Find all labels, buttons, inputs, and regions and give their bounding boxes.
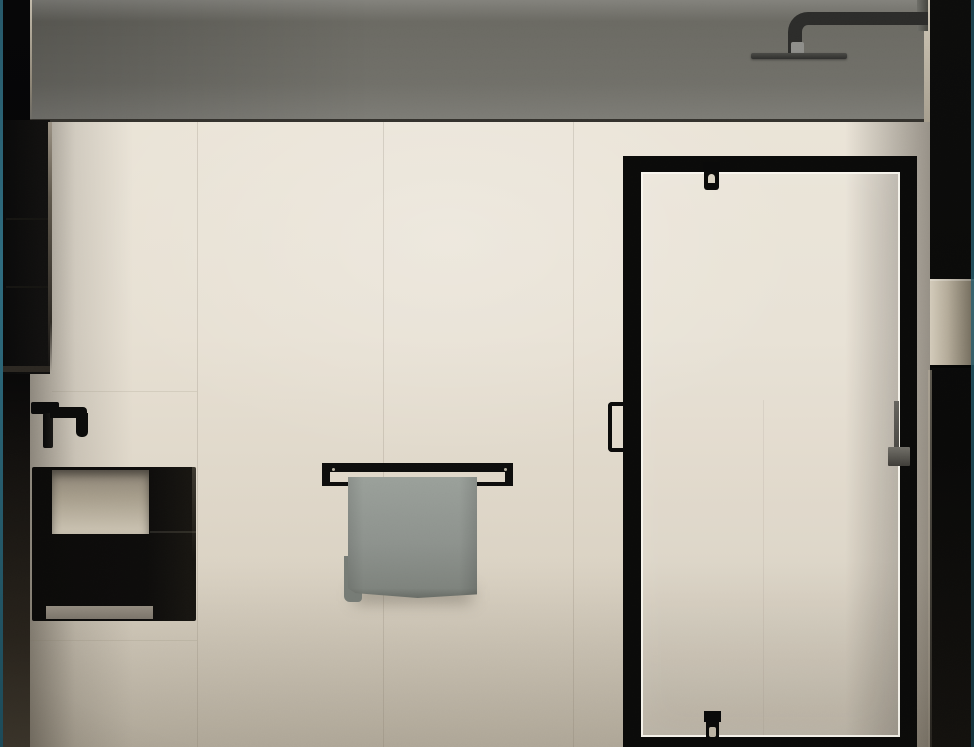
vanity-seam <box>150 531 196 533</box>
shower-glass <box>641 172 900 737</box>
tile-seam-vertical <box>573 122 574 747</box>
shower-enclosure-frame <box>623 156 917 747</box>
frame-edge-left <box>0 0 3 747</box>
faucet-handle <box>43 413 53 448</box>
rail-screw <box>504 468 507 471</box>
tile-seam-horizontal <box>30 640 197 641</box>
rain-shower-head <box>751 53 847 59</box>
left-cabinet <box>2 120 50 374</box>
towel-shading <box>348 477 477 598</box>
clamp-window <box>709 727 716 737</box>
clamp-tab <box>703 162 720 172</box>
cabinet-shelf-line <box>6 218 48 220</box>
cabinet-edge-highlight <box>48 122 52 372</box>
faucet-spout-tip <box>76 413 88 437</box>
glass-clamp-top <box>703 162 720 190</box>
towel <box>348 477 477 598</box>
hand-shower-rail <box>894 401 899 451</box>
cabinet-shelf-line <box>6 286 48 288</box>
vanity-edge-highlight <box>192 467 196 621</box>
vanity-niche <box>52 470 149 534</box>
vanity-basin <box>32 467 196 621</box>
clamp-window <box>708 174 715 183</box>
glass-clamp-bottom <box>704 711 721 740</box>
right-column-edge-highlight <box>928 370 932 747</box>
bathroom-render <box>0 0 974 747</box>
hand-shower-holder <box>888 447 910 466</box>
tile-seam-horizontal <box>52 391 197 392</box>
clamp-tab <box>704 711 721 722</box>
shower-arm <box>788 12 928 56</box>
right-wall-niche <box>930 279 974 368</box>
vanity-base-shelf <box>46 606 153 619</box>
shower-door-handle <box>608 402 625 452</box>
right-wall-column <box>930 0 974 747</box>
rail-screw <box>332 468 335 471</box>
tile-seam-vertical <box>383 122 384 747</box>
cabinet-bottom-edge <box>2 366 50 372</box>
tile-seam-vertical <box>197 122 198 747</box>
